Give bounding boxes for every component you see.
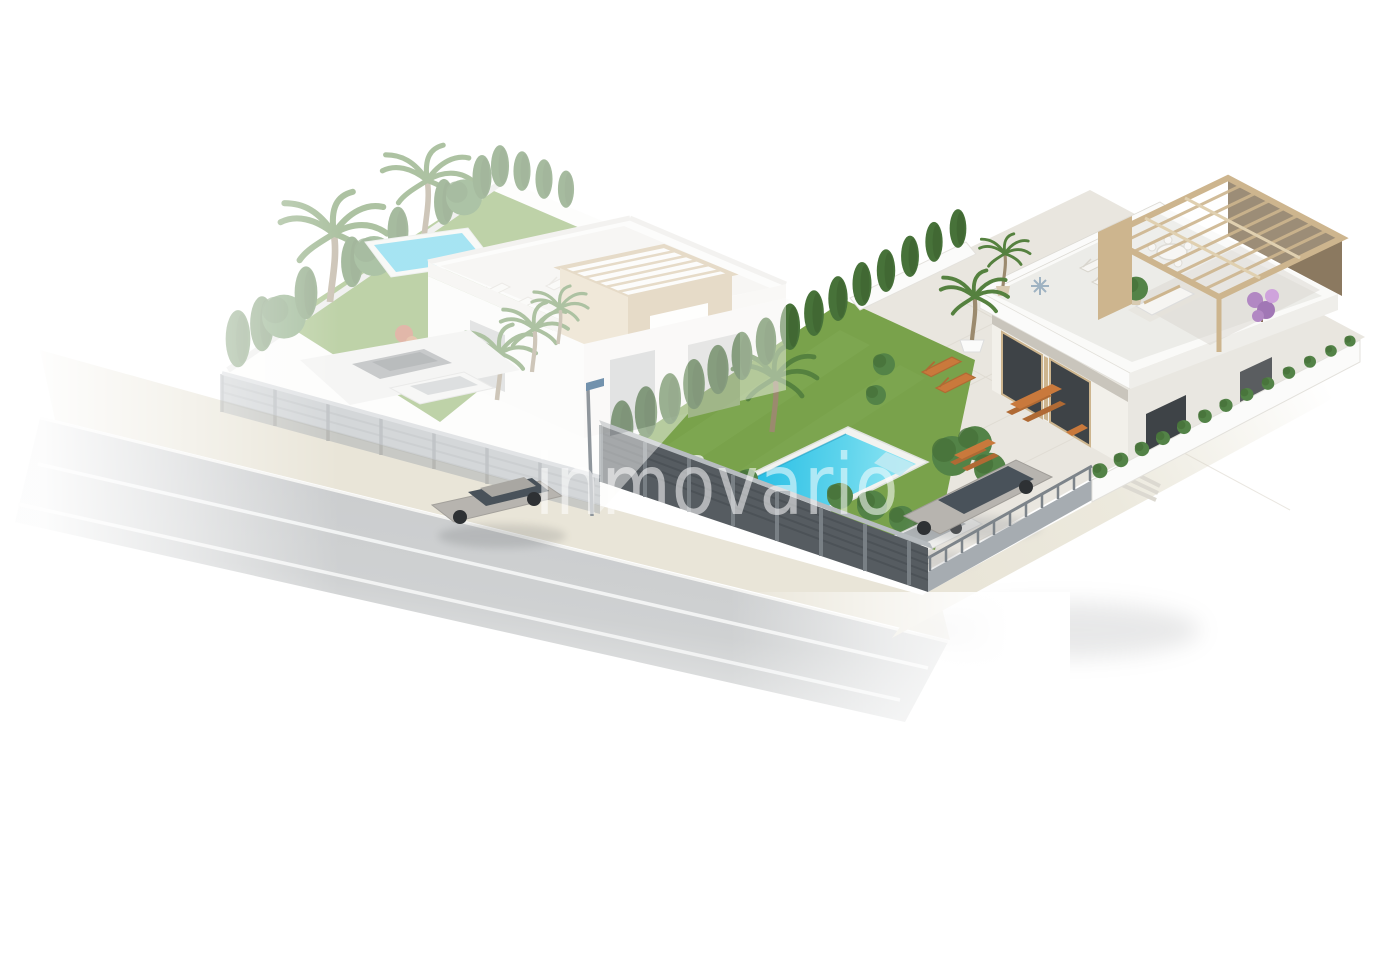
- patio-shrub: [873, 353, 895, 375]
- right-road-fade: [690, 592, 1070, 792]
- left-villa-window: [610, 350, 655, 436]
- car-wheel: [453, 510, 467, 524]
- patio-shrub: [866, 385, 886, 405]
- patio-planter: [960, 340, 984, 352]
- pergola-left-panel: [1098, 216, 1132, 320]
- watermark: inmovario: [535, 437, 900, 534]
- watermark-text: inmovario: [535, 437, 900, 534]
- render-canvas: inmovario: [0, 0, 1400, 980]
- villa-render-scene: inmovario: [0, 0, 1400, 980]
- left-edge-fade: [0, 140, 345, 800]
- left-villa-window: [688, 333, 740, 418]
